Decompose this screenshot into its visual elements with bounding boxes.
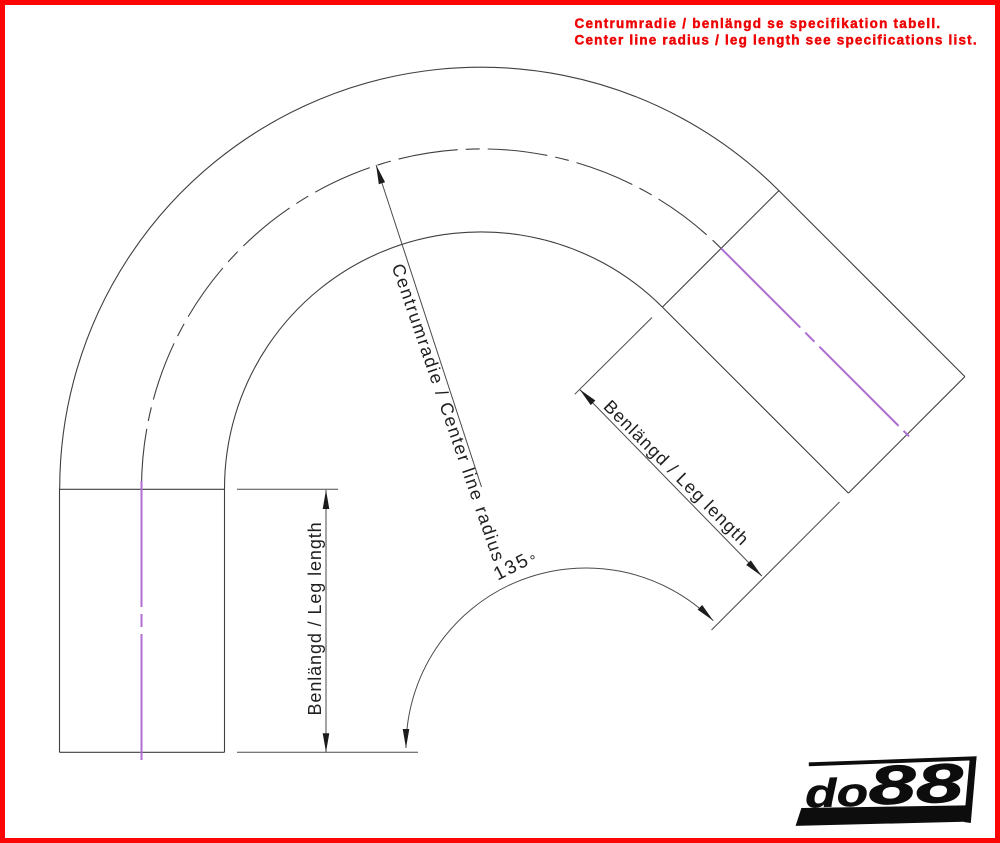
svg-text:88: 88 xyxy=(867,752,964,816)
svg-text:do: do xyxy=(804,769,868,816)
svg-text:Center line radius / leg lengt: Center line radius / leg length see spec… xyxy=(575,33,978,48)
svg-text:Centrumradie / benlängd se spe: Centrumradie / benlängd se specifikation… xyxy=(575,16,942,31)
svg-text:Benlängd / Leg length: Benlängd / Leg length xyxy=(305,521,325,715)
